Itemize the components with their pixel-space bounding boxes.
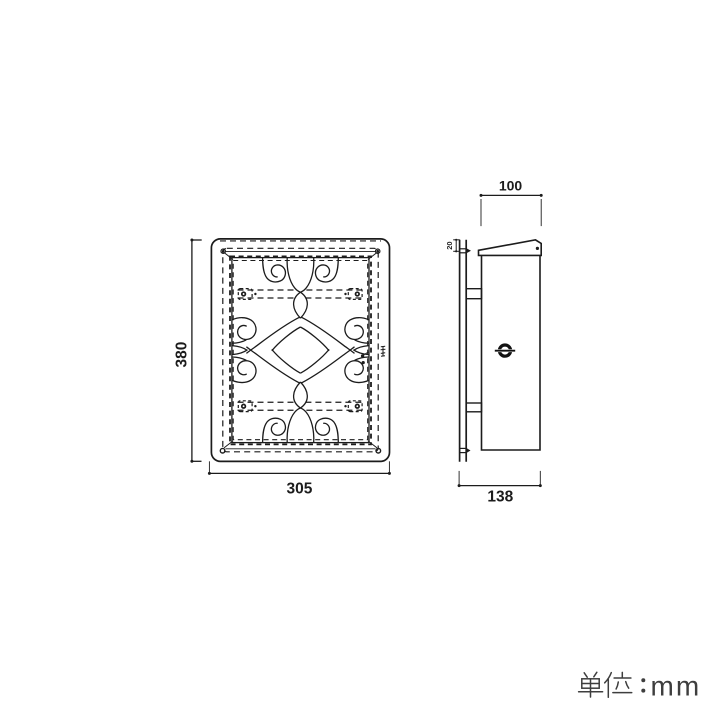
svg-text:mm: mm	[651, 671, 702, 702]
svg-text:305: 305	[286, 481, 312, 498]
svg-text:20: 20	[445, 241, 454, 249]
svg-text:100: 100	[499, 177, 523, 193]
svg-text:138: 138	[487, 488, 513, 505]
svg-text:380: 380	[174, 342, 191, 368]
